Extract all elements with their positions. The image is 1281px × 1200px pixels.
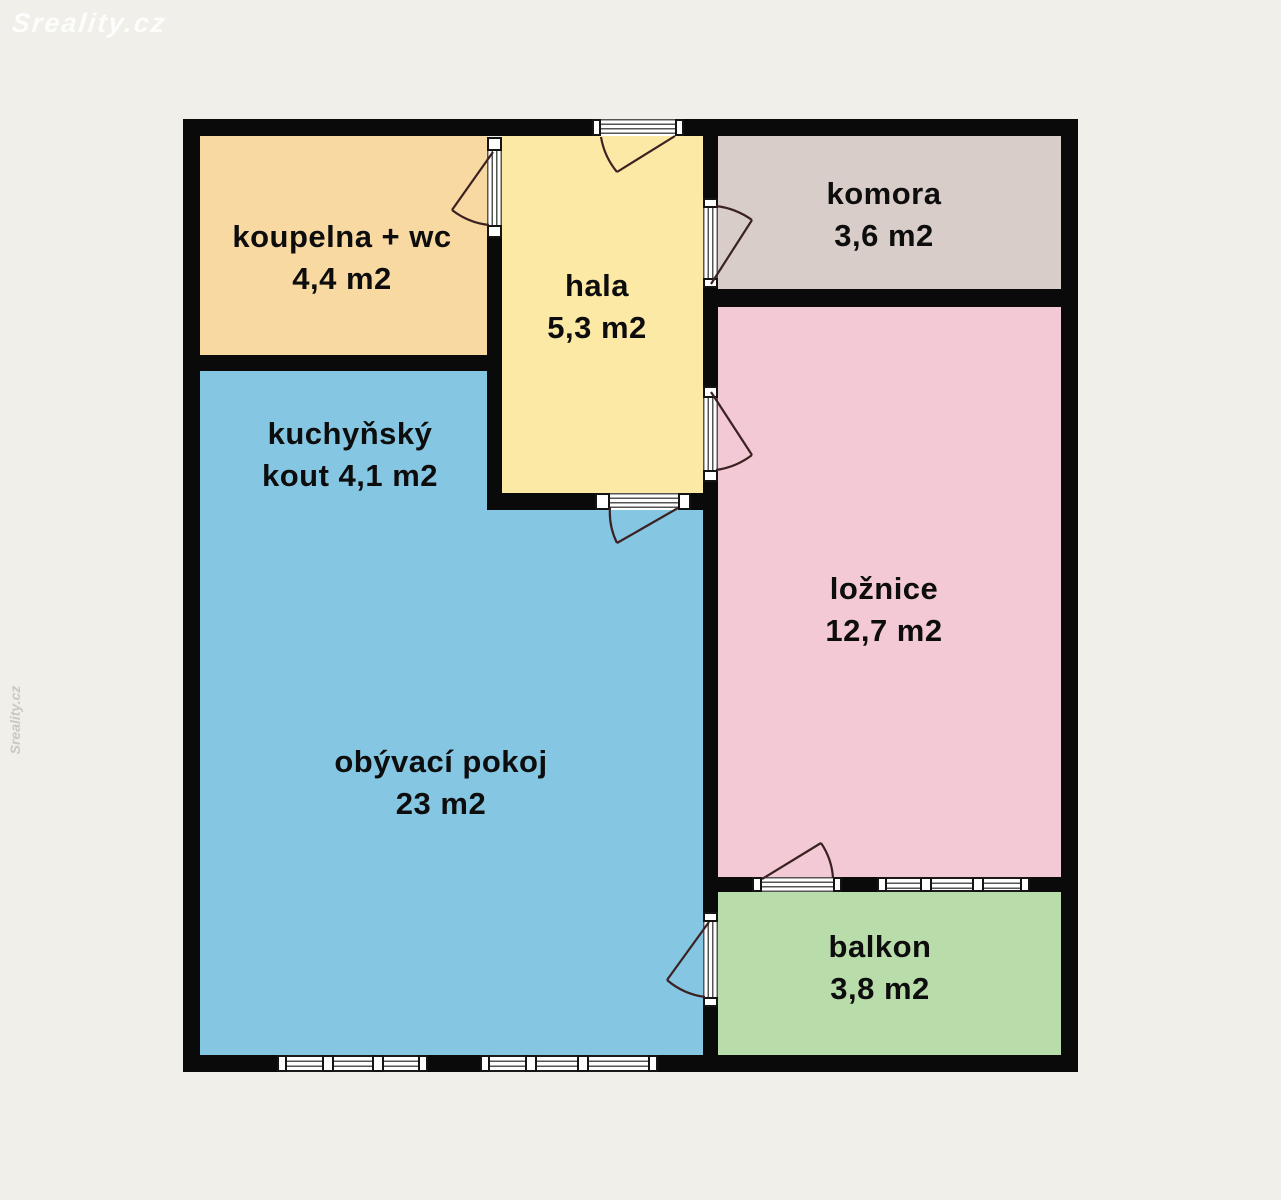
room-area: kout 4,1 m2 xyxy=(190,455,510,497)
balkon-living-door-arc xyxy=(667,980,705,997)
loznice-door-arc xyxy=(716,455,752,470)
label-kuchynsky-kout: kuchyňský kout 4,1 m2 xyxy=(190,413,510,497)
sreality-watermark-logo: Sreality.cz xyxy=(10,8,168,39)
room-name: balkon xyxy=(720,926,1040,968)
room-area: 12,7 m2 xyxy=(724,610,1044,652)
room-area: 3,6 m2 xyxy=(724,215,1044,257)
entrance-door-arc xyxy=(601,137,617,172)
living-door-leaf xyxy=(617,508,678,543)
room-area: 5,3 m2 xyxy=(437,307,757,349)
label-komora: komora 3,6 m2 xyxy=(724,173,1044,257)
room-name: koupelna + wc xyxy=(182,216,502,258)
balkon-living-door-leaf xyxy=(667,922,709,980)
room-name: kuchyňský xyxy=(190,413,510,455)
room-area: 3,8 m2 xyxy=(720,968,1040,1010)
room-name: ložnice xyxy=(724,568,1044,610)
sreality-watermark-side: Sreality.cz xyxy=(7,675,23,765)
room-name: komora xyxy=(724,173,1044,215)
entrance-door-leaf xyxy=(617,136,675,172)
label-balkon: balkon 3,8 m2 xyxy=(720,926,1040,1010)
room-area: 23 m2 xyxy=(281,783,601,825)
koupelna-door-leaf xyxy=(452,152,493,210)
floor-plan: koupelna + wc 4,4 m2 hala 5,3 m2 komora … xyxy=(0,0,1281,1200)
living-door-arc xyxy=(610,507,617,543)
label-loznice: ložnice 12,7 m2 xyxy=(724,568,1044,652)
room-name: hala xyxy=(437,265,757,307)
balkon-door-leaf xyxy=(762,843,821,879)
label-obyvaci-pokoj: obývací pokoj 23 m2 xyxy=(281,741,601,825)
loznice-door-leaf xyxy=(711,392,752,455)
balkon-door-arc xyxy=(821,843,833,878)
label-hala: hala 5,3 m2 xyxy=(437,265,757,349)
door-swing-arcs xyxy=(0,0,1281,1200)
room-name: obývací pokoj xyxy=(281,741,601,783)
